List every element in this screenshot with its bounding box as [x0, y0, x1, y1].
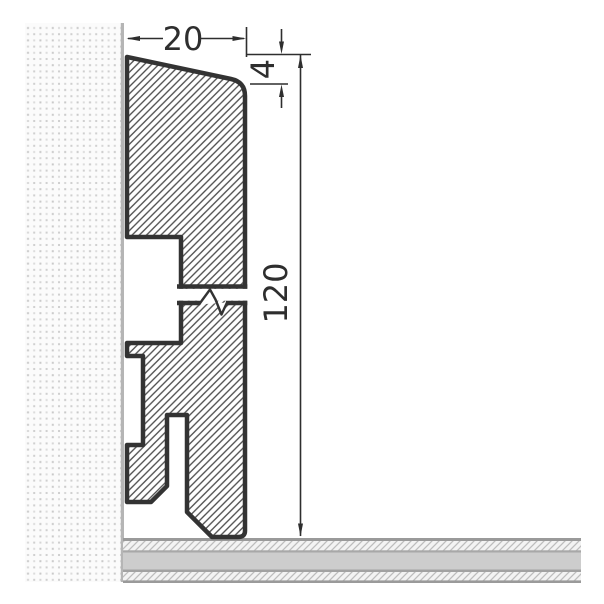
- arrowhead-left-icon: [127, 36, 141, 41]
- wall-stipple-area: [25, 23, 121, 582]
- dimension-total-height: [298, 55, 303, 537]
- floor-bottom-line: [123, 580, 581, 583]
- arrowhead-up-icon: [279, 85, 284, 98]
- floor-separator-line-1: [123, 550, 581, 552]
- arrowhead-down-icon: [298, 524, 303, 537]
- dimension-label-top-width: 20: [163, 20, 204, 58]
- dimension-label-total-height: 120: [257, 262, 295, 323]
- arrowhead-up-icon: [298, 55, 303, 68]
- wall-edge-line: [121, 23, 124, 582]
- floor-screed-top-layer: [123, 541, 581, 551]
- technical-drawing-page: 20 4 120: [0, 0, 604, 604]
- arrowhead-down-icon: [279, 42, 284, 55]
- skirting-profile-drawing-canvas: 20 4 120: [0, 0, 604, 604]
- floor-separator-line-2: [123, 570, 581, 573]
- skirting-profile: [127, 57, 256, 537]
- dimension-label-bevel-height: 4: [244, 59, 282, 79]
- floor-section: [123, 538, 581, 583]
- floor-middle-layer: [123, 553, 581, 570]
- arrowhead-right-icon: [233, 36, 247, 41]
- floor-screed-bottom-layer: [123, 572, 581, 581]
- floor-top-line: [123, 538, 581, 541]
- wall-section: [25, 23, 124, 582]
